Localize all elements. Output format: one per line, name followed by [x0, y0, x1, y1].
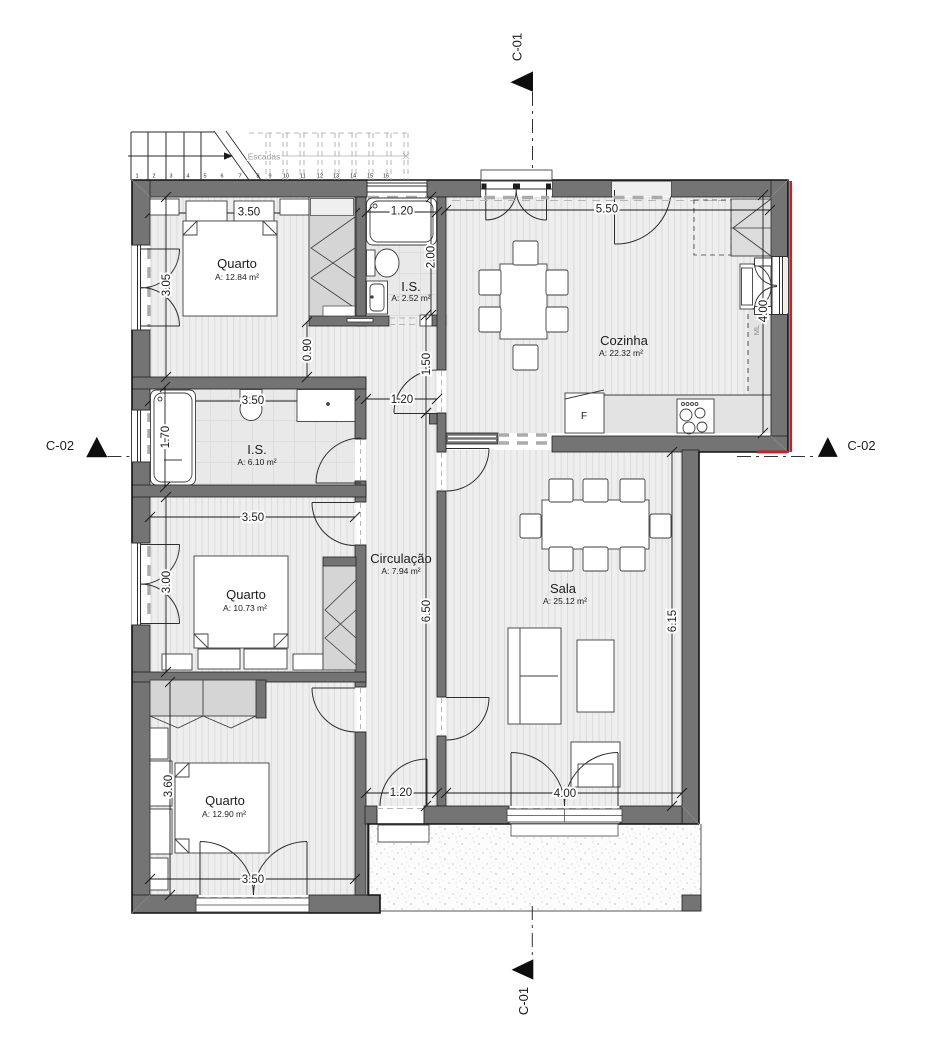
svg-text:1: 1: [135, 174, 138, 180]
svg-text:6: 6: [220, 174, 223, 180]
svg-text:2.00: 2.00: [426, 246, 438, 268]
svg-text:4: 4: [186, 174, 189, 180]
svg-text:Quarto: Quarto: [205, 793, 245, 808]
svg-text:C-01: C-01: [516, 987, 531, 1015]
svg-text:3.50: 3.50: [242, 395, 264, 407]
svg-text:14: 14: [350, 174, 356, 180]
svg-text:6.15: 6.15: [667, 610, 679, 632]
svg-text:4.00: 4.00: [554, 788, 576, 800]
svg-text:A: 12.84 m²: A: 12.84 m²: [215, 272, 259, 282]
svg-text:1.50: 1.50: [421, 353, 433, 375]
svg-text:3.00: 3.00: [161, 571, 173, 593]
svg-text:8: 8: [256, 174, 259, 180]
svg-text:A: 2.52 m²: A: 2.52 m²: [391, 293, 430, 303]
svg-text:ML: ML: [752, 325, 761, 335]
svg-text:3.50: 3.50: [238, 207, 260, 219]
svg-text:A: 22.32 m²: A: 22.32 m²: [599, 348, 643, 358]
svg-text:I.S.: I.S.: [247, 442, 267, 457]
svg-text:Quarto: Quarto: [226, 587, 266, 602]
svg-text:3.05: 3.05: [161, 274, 173, 296]
svg-text:3: 3: [169, 174, 172, 180]
svg-text:5.50: 5.50: [596, 204, 618, 216]
svg-text:2: 2: [152, 174, 155, 180]
svg-text:16: 16: [383, 174, 389, 180]
svg-text:13: 13: [333, 174, 339, 180]
svg-text:1.20: 1.20: [391, 394, 413, 406]
svg-text:Cozinha: Cozinha: [600, 333, 648, 348]
svg-text:A: 12.90 m²: A: 12.90 m²: [202, 809, 246, 819]
svg-text:3.60: 3.60: [163, 775, 175, 797]
svg-text:15: 15: [367, 174, 373, 180]
svg-text:5: 5: [203, 174, 206, 180]
svg-text:3.50: 3.50: [242, 512, 264, 524]
svg-text:1.20: 1.20: [391, 206, 413, 218]
svg-text:4.00: 4.00: [758, 300, 770, 322]
svg-text:1.70: 1.70: [160, 426, 172, 448]
svg-text:A: 6.10 m²: A: 6.10 m²: [237, 457, 276, 467]
svg-text:1.20: 1.20: [390, 787, 412, 799]
svg-text:A: 25.12 m²: A: 25.12 m²: [543, 596, 587, 606]
svg-text:10: 10: [283, 174, 289, 180]
svg-text:9: 9: [268, 174, 271, 180]
svg-text:F: F: [581, 411, 587, 422]
svg-text:Sala: Sala: [550, 581, 577, 596]
svg-text:11: 11: [300, 174, 306, 180]
svg-text:0.90: 0.90: [302, 339, 314, 361]
svg-text:A: 10.73 m²: A: 10.73 m²: [223, 603, 267, 613]
svg-text:A: 7.94 m²: A: 7.94 m²: [381, 566, 420, 576]
svg-text:Circulação: Circulação: [370, 551, 431, 566]
svg-text:6.50: 6.50: [421, 600, 433, 622]
svg-text:C-02: C-02: [46, 438, 74, 453]
svg-text:3.50: 3.50: [242, 874, 264, 886]
svg-text:Quarto: Quarto: [217, 256, 257, 271]
svg-text:Escadas: Escadas: [248, 152, 281, 162]
svg-text:12: 12: [317, 174, 323, 180]
svg-text:7: 7: [238, 174, 241, 180]
svg-text:I.S.: I.S.: [401, 279, 421, 294]
svg-text:C-01: C-01: [510, 33, 525, 61]
svg-text:C-02: C-02: [847, 438, 875, 453]
